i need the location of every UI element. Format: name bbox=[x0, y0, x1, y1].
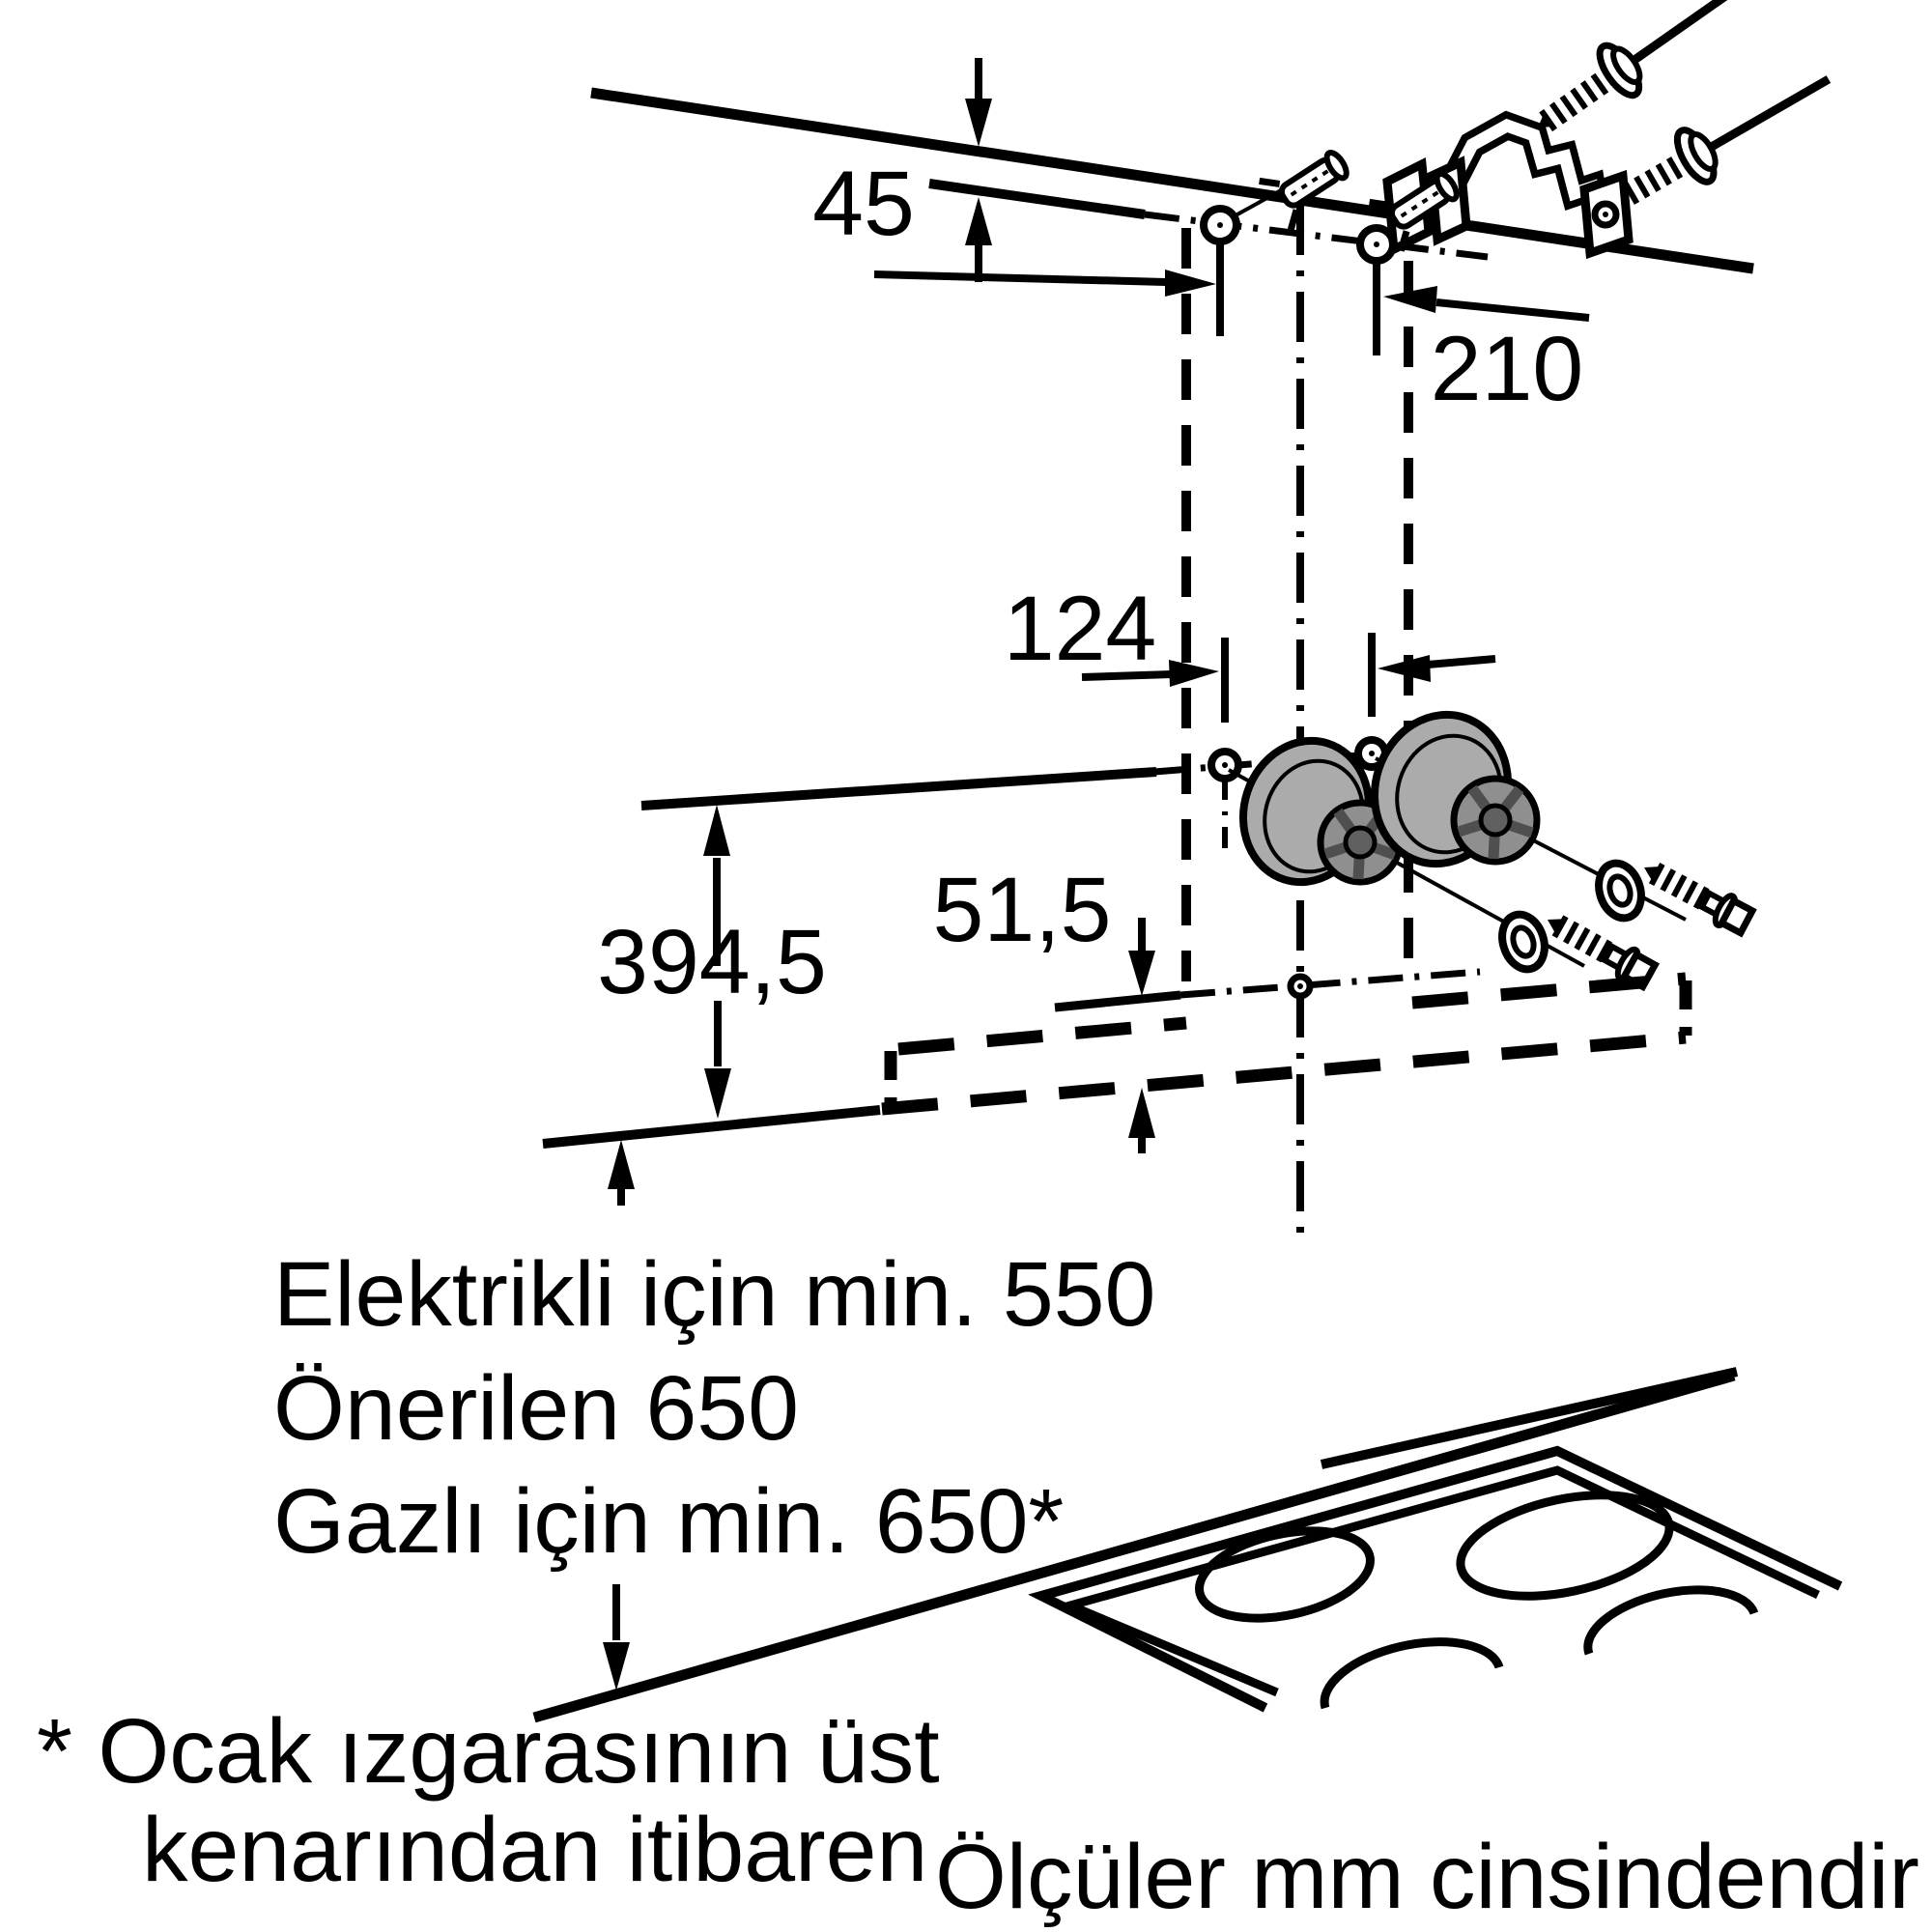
hood-top-edge-left bbox=[898, 1023, 1186, 1049]
dim124-right-line bbox=[1428, 659, 1495, 665]
lower-hole-left-center bbox=[1222, 762, 1228, 768]
screw-ll-threads bbox=[1557, 925, 1607, 953]
dim210-right-line bbox=[1436, 302, 1589, 318]
dimension-51-5: 51,5 bbox=[933, 859, 1480, 1008]
spacer-left-hub bbox=[1346, 828, 1375, 857]
dim124-label: 124 bbox=[1004, 578, 1157, 680]
note-gas: Gazlı için min. 650* bbox=[273, 1470, 1064, 1573]
units-note: Ölçüler mm cinsindendir bbox=[935, 1826, 1919, 1928]
center-hole-dot bbox=[1297, 983, 1303, 989]
dim210-left-line bbox=[874, 274, 1166, 282]
screw-lower-right bbox=[1636, 853, 1754, 936]
hood-bottom-edge bbox=[882, 1037, 1686, 1109]
dim394-label: 394,5 bbox=[597, 911, 827, 1013]
screw1-threads bbox=[1546, 80, 1605, 123]
top-screw-1 bbox=[1521, 0, 1752, 152]
burner-front-right bbox=[1588, 1590, 1754, 1654]
dimension-210: 210 bbox=[874, 270, 1589, 420]
clearance-notes: Elektrikli için min. 550 Önerilen 650 Ga… bbox=[273, 1243, 1155, 1573]
burner-front-left bbox=[1324, 1642, 1499, 1708]
note-recommended: Önerilen 650 bbox=[273, 1357, 799, 1460]
bracket-top-reference-line bbox=[929, 184, 1145, 214]
screw1-axis-line bbox=[1634, 0, 1736, 60]
center-hole-line bbox=[1180, 972, 1480, 995]
screw2-axis-line bbox=[1712, 79, 1829, 147]
dim45-up-arrowhead bbox=[965, 197, 992, 245]
lower-hole-right-center bbox=[1369, 751, 1375, 756]
bracket-screw-hole-center bbox=[1603, 212, 1608, 217]
washer-right bbox=[1592, 858, 1648, 923]
dim45-down-arrowhead bbox=[965, 99, 992, 147]
dim51-down-arrowhead bbox=[1128, 951, 1155, 996]
top-hole-right-center bbox=[1374, 241, 1379, 247]
chimney-top-reference-line bbox=[641, 772, 1156, 806]
hood-dashed-outline bbox=[882, 979, 1686, 1109]
wall-bottom-reference-line bbox=[543, 1110, 880, 1144]
dimension-45: 45 bbox=[812, 58, 992, 282]
dim51-label: 51,5 bbox=[933, 859, 1112, 961]
technical-diagram: 45 210 bbox=[0, 0, 1932, 1932]
counter-back-line bbox=[1321, 1372, 1737, 1464]
height-down-arrowhead bbox=[603, 1642, 630, 1690]
diagram-canvas: 45 210 bbox=[0, 0, 1932, 1932]
wall-plug-left bbox=[1260, 137, 1358, 230]
dimension-394-5: 394,5 bbox=[597, 805, 827, 1119]
chimney-duct-lines bbox=[1186, 205, 1408, 1248]
dim124-right-arrowhead bbox=[1169, 660, 1219, 687]
dim51-reference-line bbox=[1055, 995, 1180, 1008]
washer-left bbox=[1495, 909, 1551, 975]
dim394-up-arrowhead bbox=[703, 805, 730, 856]
height-up-arrowhead-hood bbox=[1128, 1088, 1155, 1138]
dim45-label: 45 bbox=[812, 153, 915, 255]
spacer-right-hub bbox=[1481, 806, 1510, 835]
dim210-label: 210 bbox=[1431, 318, 1584, 420]
height-up-arrowhead-wall bbox=[608, 1140, 635, 1189]
top-hole-left-center bbox=[1217, 222, 1223, 228]
cooktop bbox=[1041, 1451, 1840, 1708]
burner-back-right bbox=[1451, 1478, 1678, 1613]
screw-lr-threads bbox=[1655, 873, 1706, 900]
exploded-assembly-lower bbox=[1225, 697, 1754, 990]
dimension-124: 124 bbox=[1004, 578, 1495, 687]
note-electric: Elektrikli için min. 550 bbox=[273, 1243, 1155, 1346]
footnote-line1: * Ocak ızgarasının üst bbox=[37, 1700, 940, 1803]
burner-back-left bbox=[1191, 1517, 1378, 1633]
dim394-down-arrowhead bbox=[704, 1068, 731, 1119]
hood-top-edge-right bbox=[1412, 979, 1686, 1003]
cooktop-inner-border bbox=[1070, 1470, 1818, 1692]
dim210-right-arrowhead bbox=[1165, 270, 1216, 297]
footnote: * Ocak ızgarasının üst kenarından itibar… bbox=[37, 1700, 940, 1901]
footnote-line2: kenarından itibaren bbox=[142, 1799, 927, 1901]
